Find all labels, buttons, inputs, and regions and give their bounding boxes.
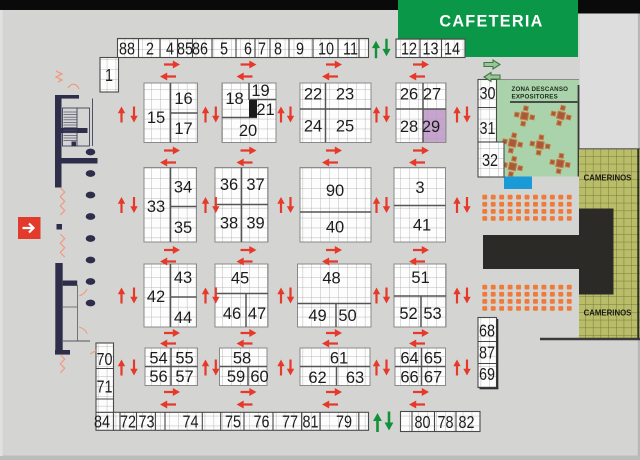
svg-text:36: 36 [220,176,238,194]
svg-text:64: 64 [400,350,418,368]
svg-text:90: 90 [326,182,344,200]
svg-text:58: 58 [233,350,251,368]
svg-text:47: 47 [248,305,266,323]
svg-text:62: 62 [308,369,326,387]
svg-text:51: 51 [411,269,429,287]
svg-text:39: 39 [246,215,264,233]
svg-text:75: 75 [225,412,241,432]
svg-text:24: 24 [304,118,322,136]
svg-text:41: 41 [413,217,431,235]
svg-text:32: 32 [482,150,498,170]
svg-text:37: 37 [246,176,264,194]
svg-text:2: 2 [146,39,154,59]
svg-text:87: 87 [479,343,495,363]
svg-text:ZONA DESCANSO: ZONA DESCANSO [512,86,569,93]
svg-text:17: 17 [174,120,192,138]
svg-text:67: 67 [424,369,442,387]
svg-text:55: 55 [175,350,193,368]
svg-text:66: 66 [400,369,418,387]
svg-text:16: 16 [174,90,192,108]
svg-text:69: 69 [479,365,495,385]
svg-text:8: 8 [274,39,282,59]
svg-text:84: 84 [94,412,110,432]
svg-text:38: 38 [220,215,238,233]
svg-text:78: 78 [437,412,453,432]
svg-text:56: 56 [149,368,167,386]
svg-text:44: 44 [174,309,192,327]
svg-text:46: 46 [223,305,241,323]
svg-text:76: 76 [253,412,269,432]
svg-text:53: 53 [423,305,441,323]
svg-text:23: 23 [336,86,354,104]
svg-text:14: 14 [444,39,460,59]
svg-text:65: 65 [424,350,442,368]
svg-text:82: 82 [458,412,474,432]
svg-text:86: 86 [192,39,208,59]
svg-text:72: 72 [120,412,136,432]
svg-text:9: 9 [296,39,304,59]
svg-text:70: 70 [96,350,112,370]
svg-text:CAMERINOS: CAMERINOS [584,173,632,182]
svg-text:49: 49 [308,307,326,325]
svg-text:4: 4 [166,39,174,59]
svg-text:13: 13 [422,39,438,59]
svg-text:71: 71 [96,377,112,397]
svg-text:50: 50 [338,307,356,325]
svg-text:18: 18 [225,90,243,108]
svg-text:88: 88 [119,39,135,59]
svg-text:3: 3 [415,179,424,197]
svg-text:26: 26 [400,86,418,104]
svg-text:20: 20 [239,122,257,140]
svg-text:60: 60 [250,368,268,386]
svg-text:12: 12 [401,39,417,59]
svg-text:5: 5 [220,39,228,59]
svg-text:10: 10 [318,39,334,59]
svg-text:35: 35 [174,219,192,237]
svg-text:85: 85 [177,39,193,59]
svg-text:CAFETERIA: CAFETERIA [439,13,543,31]
svg-text:1: 1 [105,66,113,86]
svg-text:28: 28 [400,118,418,136]
svg-text:74: 74 [182,412,198,432]
svg-text:45: 45 [231,270,249,288]
svg-text:73: 73 [138,412,154,432]
svg-text:42: 42 [147,288,165,306]
svg-text:19: 19 [251,82,269,100]
svg-text:EXPOSITORES: EXPOSITORES [512,93,558,100]
svg-text:30: 30 [479,84,495,104]
svg-text:43: 43 [174,269,192,287]
svg-text:79: 79 [336,412,352,432]
svg-text:57: 57 [175,368,193,386]
svg-text:59: 59 [227,368,245,386]
svg-text:68: 68 [479,321,495,341]
svg-text:25: 25 [336,118,354,136]
svg-text:29: 29 [422,118,440,136]
svg-text:40: 40 [326,219,344,237]
svg-text:31: 31 [479,119,495,139]
svg-text:27: 27 [423,86,441,104]
svg-text:6: 6 [244,39,252,59]
svg-text:15: 15 [147,109,165,127]
svg-text:61: 61 [330,350,348,368]
svg-text:80: 80 [414,412,430,432]
svg-text:CAMERINOS: CAMERINOS [584,308,632,317]
svg-text:11: 11 [343,39,358,59]
svg-text:54: 54 [149,350,167,368]
svg-text:21: 21 [256,101,274,119]
svg-text:34: 34 [174,179,192,197]
svg-text:33: 33 [147,198,165,216]
svg-text:81: 81 [302,412,318,432]
svg-text:22: 22 [304,86,322,104]
svg-text:77: 77 [282,412,298,432]
svg-text:7: 7 [258,39,266,59]
svg-text:52: 52 [399,305,417,323]
svg-text:48: 48 [322,270,340,288]
svg-text:63: 63 [346,369,364,387]
